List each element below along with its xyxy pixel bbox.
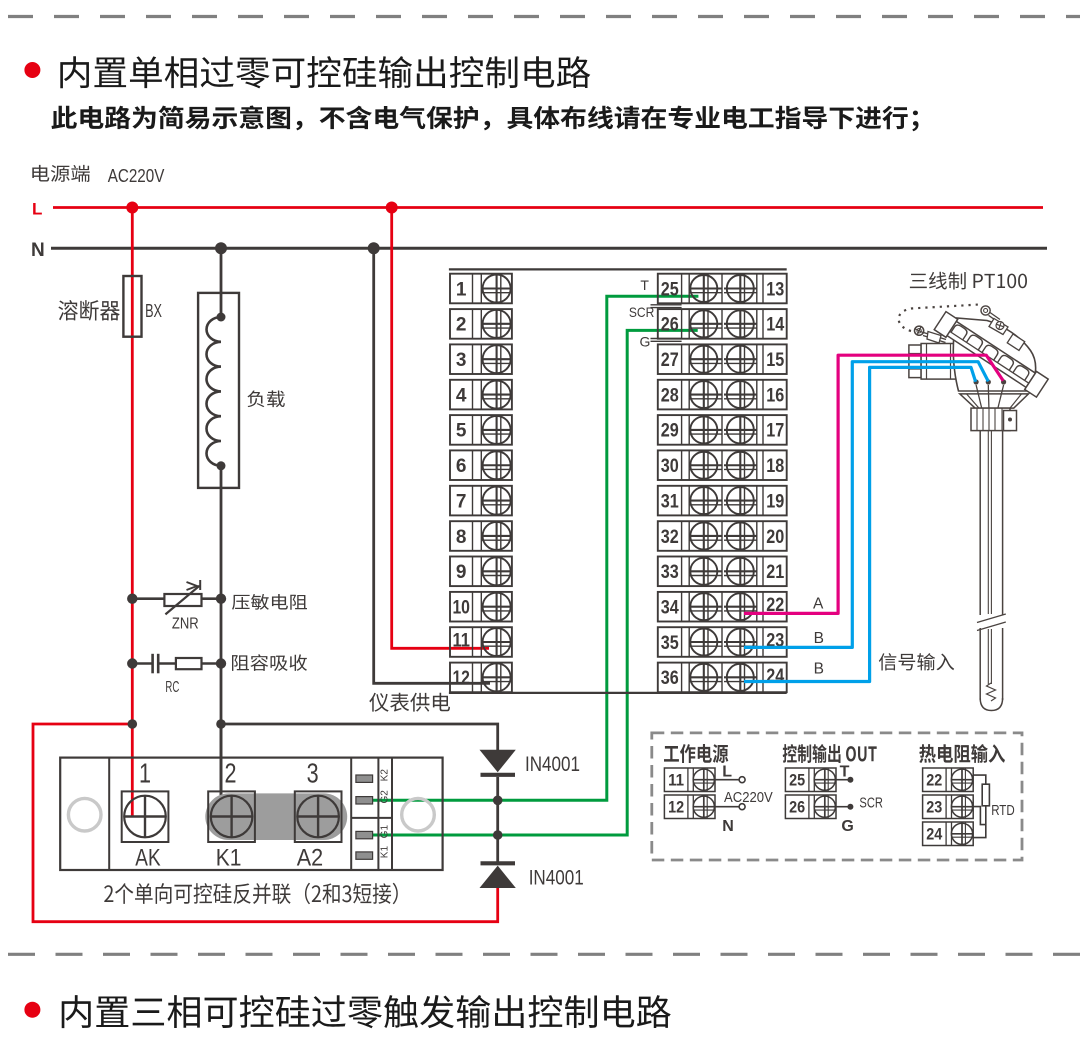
svg-text:SCR: SCR <box>859 795 883 812</box>
svg-text:RTD: RTD <box>991 802 1015 819</box>
svg-text:24: 24 <box>766 666 784 687</box>
svg-text:17: 17 <box>766 421 784 442</box>
svg-text:G1: G1 <box>380 825 391 839</box>
svg-text:5: 5 <box>456 421 467 442</box>
svg-text:31: 31 <box>661 491 679 512</box>
svg-text:7: 7 <box>456 491 467 512</box>
svg-text:K1: K1 <box>380 846 391 859</box>
svg-text:B: B <box>814 661 824 678</box>
svg-text:8: 8 <box>456 527 467 548</box>
svg-text:35: 35 <box>661 633 679 654</box>
svg-text:20: 20 <box>766 527 784 548</box>
svg-text:19: 19 <box>766 491 784 512</box>
svg-text:L: L <box>722 764 732 781</box>
svg-text:4: 4 <box>456 385 467 406</box>
svg-text:B: B <box>814 630 824 647</box>
svg-text:26: 26 <box>789 798 805 817</box>
svg-text:SCR: SCR <box>629 304 654 320</box>
svg-text:G2: G2 <box>380 790 391 804</box>
svg-text:16: 16 <box>766 385 784 406</box>
svg-text:AK: AK <box>135 844 160 871</box>
svg-text:ZNR: ZNR <box>172 615 199 632</box>
svg-text:T: T <box>640 277 649 293</box>
svg-text:1: 1 <box>139 758 151 789</box>
svg-text:3: 3 <box>456 350 467 371</box>
svg-text:T: T <box>840 764 850 781</box>
svg-text:11: 11 <box>668 771 684 790</box>
svg-text:A: A <box>813 595 824 612</box>
svg-text:11: 11 <box>452 631 470 652</box>
svg-text:3: 3 <box>307 758 319 789</box>
svg-text:30: 30 <box>661 456 679 477</box>
svg-text:24: 24 <box>926 825 942 844</box>
svg-text:1: 1 <box>456 279 467 300</box>
svg-text:32: 32 <box>661 527 679 548</box>
svg-text:13: 13 <box>766 279 784 300</box>
svg-text:K2: K2 <box>380 769 391 782</box>
svg-text:34: 34 <box>661 598 679 619</box>
svg-text:N: N <box>31 240 45 261</box>
svg-text:K1: K1 <box>216 844 242 871</box>
svg-text:26: 26 <box>661 315 679 336</box>
svg-text:23: 23 <box>926 798 942 817</box>
svg-text:RC: RC <box>165 679 179 696</box>
svg-text:A2: A2 <box>297 844 323 871</box>
svg-text:12: 12 <box>668 798 684 817</box>
svg-text:36: 36 <box>661 668 679 689</box>
svg-text:28: 28 <box>661 385 679 406</box>
svg-text:10: 10 <box>452 598 470 619</box>
svg-text:N: N <box>722 818 734 835</box>
svg-text:25: 25 <box>789 771 805 790</box>
svg-text:IN4001: IN4001 <box>525 753 580 776</box>
svg-text:9: 9 <box>456 562 467 583</box>
svg-text:L: L <box>32 200 42 219</box>
svg-text:6: 6 <box>456 456 467 477</box>
svg-text:27: 27 <box>661 350 679 371</box>
svg-text:AC220V: AC220V <box>724 789 773 806</box>
svg-text:BX: BX <box>145 301 162 321</box>
svg-text:15: 15 <box>766 350 784 371</box>
svg-text:22: 22 <box>926 771 942 790</box>
svg-text:12: 12 <box>452 668 470 689</box>
svg-text:25: 25 <box>661 279 679 300</box>
svg-text:29: 29 <box>661 421 679 442</box>
svg-text:2: 2 <box>225 758 237 789</box>
svg-text:G: G <box>640 334 651 350</box>
svg-text:33: 33 <box>661 562 679 583</box>
svg-text:14: 14 <box>766 315 784 336</box>
svg-text:18: 18 <box>766 456 784 477</box>
svg-text:G: G <box>841 818 853 835</box>
svg-text:21: 21 <box>766 562 784 583</box>
svg-text:AC220V: AC220V <box>108 166 165 186</box>
svg-text:IN4001: IN4001 <box>529 867 584 890</box>
svg-text:2: 2 <box>456 315 467 336</box>
